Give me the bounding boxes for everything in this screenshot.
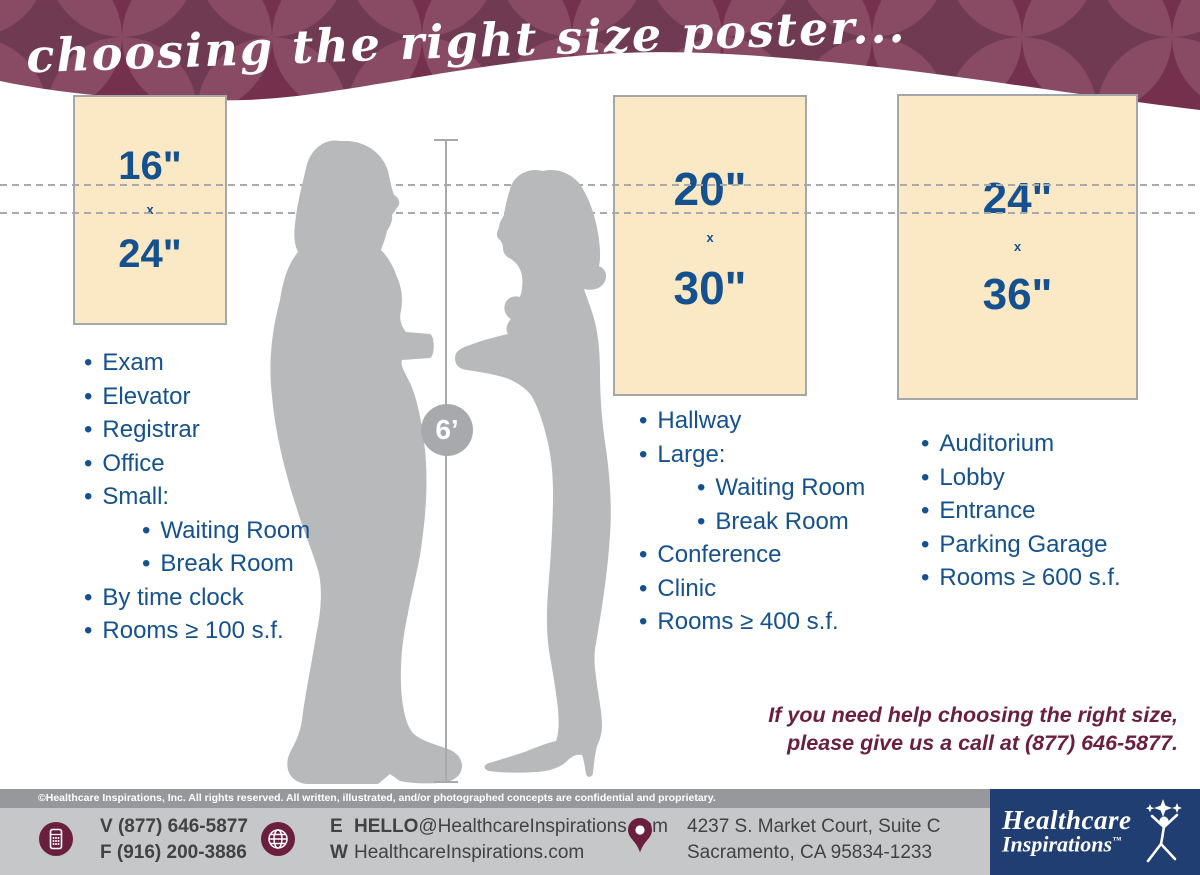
bullet-icon: • <box>639 404 647 438</box>
poster-box-24x36: 24" x 36" <box>897 94 1138 400</box>
list-item: • Lobby <box>921 461 1121 495</box>
bullet-icon: • <box>921 528 929 562</box>
list-item: • Break Room <box>639 505 865 539</box>
location-pin-icon <box>627 817 653 855</box>
bullet-icon: • <box>142 547 150 581</box>
list-item: • Large: <box>639 438 865 472</box>
list-item: • Parking Garage <box>921 528 1121 562</box>
poster-box-16x24: 16" x 24" <box>73 95 227 325</box>
list-item: • Conference <box>639 538 865 572</box>
list-item: • Entrance <box>921 494 1121 528</box>
logo-figure-icon <box>1130 795 1194 869</box>
list-item-label: Small: <box>102 480 169 514</box>
poster-size-infographic: choosing the right size poster... 16" x … <box>0 0 1200 875</box>
bullet-icon: • <box>697 471 705 505</box>
bullet-icon: • <box>84 380 92 414</box>
bullet-icon: • <box>84 447 92 481</box>
list-item-label: Break Room <box>715 505 848 539</box>
list-item-label: Parking Garage <box>939 528 1107 562</box>
dashed-guideline-bottom <box>0 212 1200 214</box>
list-item: • Elevator <box>84 380 310 414</box>
list-item-label: By time clock <box>102 581 243 615</box>
list-item: • Office <box>84 447 310 481</box>
address-line2: Sacramento, CA 95834-1233 <box>687 840 940 866</box>
fax-number: F (916) 200-3886 <box>100 840 248 866</box>
help-note-line1: If you need help choosing the right size… <box>768 701 1178 729</box>
dashed-guideline-top <box>0 184 1200 186</box>
list-item-label: Clinic <box>657 572 716 606</box>
globe-icon <box>261 822 295 856</box>
list-item: • Rooms ≥ 400 s.f. <box>639 605 865 639</box>
list-item: • Break Room <box>84 547 310 581</box>
bullet-icon: • <box>84 346 92 380</box>
list-item: • Hallway <box>639 404 865 438</box>
list-item: • Registrar <box>84 413 310 447</box>
poster-height-label: 30" <box>674 265 747 311</box>
poster-width-label: 20" <box>674 166 747 212</box>
list-item-label: Waiting Room <box>715 471 865 505</box>
bullet-icon: • <box>921 494 929 528</box>
poster-box-20x30: 20" x 30" <box>613 95 807 396</box>
help-note-line2: please give us a call at (877) 646-5877. <box>768 729 1178 757</box>
list-item: • Clinic <box>639 572 865 606</box>
list-item-label: Large: <box>657 438 725 472</box>
list-item-label: Registrar <box>102 413 199 447</box>
bullet-icon: • <box>921 561 929 595</box>
email-web-block: EHELLO@HealthcareInspirations.com WHealt… <box>330 814 668 866</box>
measure-cap-top <box>434 139 458 141</box>
bullet-icon: • <box>921 427 929 461</box>
poster-x-label: x <box>1014 241 1021 254</box>
phone-icon <box>39 822 73 856</box>
list-item-label: Office <box>102 447 164 481</box>
list-item-label: Rooms ≥ 600 s.f. <box>939 561 1120 595</box>
locations-list-20x30: • Hallway • Large: • Waiting Room • Brea… <box>639 404 865 639</box>
bullet-icon: • <box>84 413 92 447</box>
list-item-label: Conference <box>657 538 781 572</box>
list-item-label: Auditorium <box>939 427 1054 461</box>
bullet-icon: • <box>639 605 647 639</box>
locations-list-24x36: • Auditorium • Lobby • Entrance • Parkin… <box>921 427 1121 595</box>
poster-height-label: 36" <box>983 273 1053 317</box>
list-item-label: Rooms ≥ 100 s.f. <box>102 614 283 648</box>
measure-cap-bottom <box>434 781 458 783</box>
bullet-icon: • <box>142 514 150 548</box>
logo-line1: Healthcare <box>1002 810 1131 830</box>
list-item-label: Waiting Room <box>160 514 310 548</box>
list-item-label: Break Room <box>160 547 293 581</box>
list-item: • By time clock <box>84 581 310 615</box>
list-item-label: Hallway <box>657 404 741 438</box>
measure-line <box>445 140 447 783</box>
company-logo: Healthcare Inspirations™ <box>990 789 1200 875</box>
logo-line2: Inspirations™ <box>1002 830 1131 854</box>
six-foot-label: 6’ <box>435 414 458 446</box>
list-item-label: Exam <box>102 346 163 380</box>
poster-x-label: x <box>146 204 153 217</box>
list-item-label: Elevator <box>102 380 190 414</box>
list-item-label: Lobby <box>939 461 1004 495</box>
list-item: • Exam <box>84 346 310 380</box>
trademark-symbol: ™ <box>1112 835 1121 845</box>
bullet-icon: • <box>921 461 929 495</box>
poster-width-label: 16" <box>118 146 181 186</box>
bullet-icon: • <box>639 438 647 472</box>
voice-number: V (877) 646-5877 <box>100 814 248 840</box>
six-foot-badge: 6’ <box>421 404 473 456</box>
help-note: If you need help choosing the right size… <box>768 701 1178 757</box>
bullet-icon: • <box>84 581 92 615</box>
poster-x-label: x <box>706 232 713 245</box>
list-item: • Auditorium <box>921 427 1121 461</box>
woman-silhouette <box>455 170 611 777</box>
website-row: WHealthcareInspirations.com <box>330 840 668 866</box>
list-item: • Rooms ≥ 600 s.f. <box>921 561 1121 595</box>
bullet-icon: • <box>639 538 647 572</box>
logo-wordmark: Healthcare Inspirations™ <box>1002 810 1131 854</box>
email-row: EHELLO@HealthcareInspirations.com <box>330 814 668 840</box>
bullet-icon: • <box>84 480 92 514</box>
locations-list-16x24: • Exam • Elevator • Registrar • Office •… <box>84 346 310 648</box>
bullet-icon: • <box>697 505 705 539</box>
poster-height-label: 24" <box>118 234 181 274</box>
bullet-icon: • <box>639 572 647 606</box>
bullet-icon: • <box>84 614 92 648</box>
list-item: • Waiting Room <box>84 514 310 548</box>
phone-fax-block: V (877) 646-5877 F (916) 200-3886 <box>100 814 248 866</box>
list-item: • Small: <box>84 480 310 514</box>
list-item: • Rooms ≥ 100 s.f. <box>84 614 310 648</box>
list-item: • Waiting Room <box>639 471 865 505</box>
list-item-label: Entrance <box>939 494 1035 528</box>
address-line1: 4237 S. Market Court, Suite C <box>687 814 940 840</box>
list-item-label: Rooms ≥ 400 s.f. <box>657 605 838 639</box>
address-block: 4237 S. Market Court, Suite C Sacramento… <box>687 814 940 866</box>
